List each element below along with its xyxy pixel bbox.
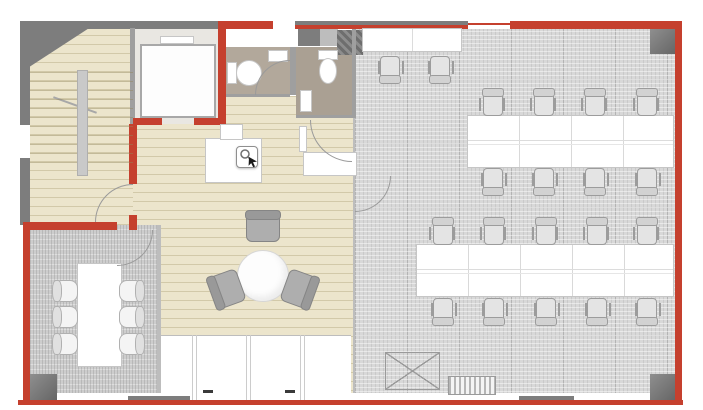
vestibule-mullion <box>192 335 193 400</box>
conference-table <box>77 263 122 367</box>
zoom-cursor-icon <box>236 146 260 170</box>
elevator-right-wall-red <box>218 28 226 124</box>
bath-2-bottom-wall <box>296 115 354 118</box>
door-marker <box>285 390 295 393</box>
bath-office-wall <box>352 28 356 118</box>
office-chair <box>637 298 657 324</box>
vestibule-top-line <box>161 335 351 336</box>
office-chair <box>484 298 504 324</box>
sink-2 <box>300 90 312 112</box>
wall-desk-pair <box>362 28 462 52</box>
conference-chair <box>119 280 143 302</box>
conference-chair <box>54 306 78 328</box>
office-chair <box>430 56 450 82</box>
corner-column-bl <box>30 374 57 400</box>
top-wall-red-c <box>510 21 680 29</box>
bath-divider-wall <box>290 47 296 95</box>
top-window-gap-a <box>273 21 295 29</box>
hall-door-leaf <box>299 126 307 152</box>
office-floor <box>355 21 676 400</box>
top-window-red-line <box>468 23 510 25</box>
office-chair <box>536 298 556 324</box>
floor-grille <box>448 376 496 395</box>
office-chair <box>483 90 503 116</box>
office-chair <box>585 90 605 116</box>
magnifier-arrow-glyph <box>236 146 260 170</box>
vestibule-mullion <box>246 335 247 400</box>
meeting-room-top-wall <box>23 222 117 230</box>
conference-chair <box>119 306 143 328</box>
top-wall-red-a <box>218 21 273 29</box>
left-wall-upper <box>20 21 30 225</box>
elevator-door-wall-left <box>133 118 162 125</box>
office-chair <box>637 219 657 245</box>
corner-column-tr <box>650 29 676 54</box>
elevator-door-track <box>160 36 194 44</box>
lounge-armchair <box>246 212 280 242</box>
office-chair <box>536 219 556 245</box>
office-chair <box>433 219 453 245</box>
office-chair <box>433 298 453 324</box>
stair-hall-wall-red <box>129 124 137 184</box>
shaft-block <box>298 27 320 46</box>
conference-chair <box>54 280 78 302</box>
left-wall-window <box>20 125 30 158</box>
office-chair <box>637 168 657 194</box>
door-marker <box>203 390 213 393</box>
office-chair <box>380 56 400 82</box>
vestibule-mullion <box>250 335 251 400</box>
bench-desk-upper <box>467 115 674 168</box>
office-chair <box>534 168 554 194</box>
office-chair <box>587 219 607 245</box>
toilet-2-bowl <box>319 58 337 84</box>
floor-plan-image[interactable] <box>0 0 703 410</box>
bottom-wall-red <box>18 400 683 405</box>
office-chair <box>534 90 554 116</box>
office-chair <box>484 219 504 245</box>
bench-desk-lower <box>416 244 674 297</box>
office-chair <box>637 90 657 116</box>
vestibule-mullion <box>304 335 305 400</box>
office-chair <box>483 168 503 194</box>
corner-column-br <box>650 374 676 400</box>
conference-chair <box>119 333 143 355</box>
vestibule-mullion <box>196 335 197 400</box>
shaft-block-light <box>320 29 338 46</box>
kitchen-counter-upper <box>220 124 243 140</box>
floor-opening-x <box>385 352 440 390</box>
vestibule-floor <box>161 335 351 400</box>
hatched-column <box>337 30 363 55</box>
elevator-car <box>140 44 216 118</box>
stair-lobby-wall <box>130 28 135 124</box>
conference-chair <box>54 333 78 355</box>
right-wall-red <box>675 21 682 405</box>
vestibule-mullion <box>300 335 301 400</box>
stair-stringer <box>77 70 88 176</box>
meeting-room-right-wall <box>157 225 161 400</box>
office-chair <box>585 168 605 194</box>
office-chair <box>587 298 607 324</box>
left-wall-lower-red <box>23 230 30 405</box>
